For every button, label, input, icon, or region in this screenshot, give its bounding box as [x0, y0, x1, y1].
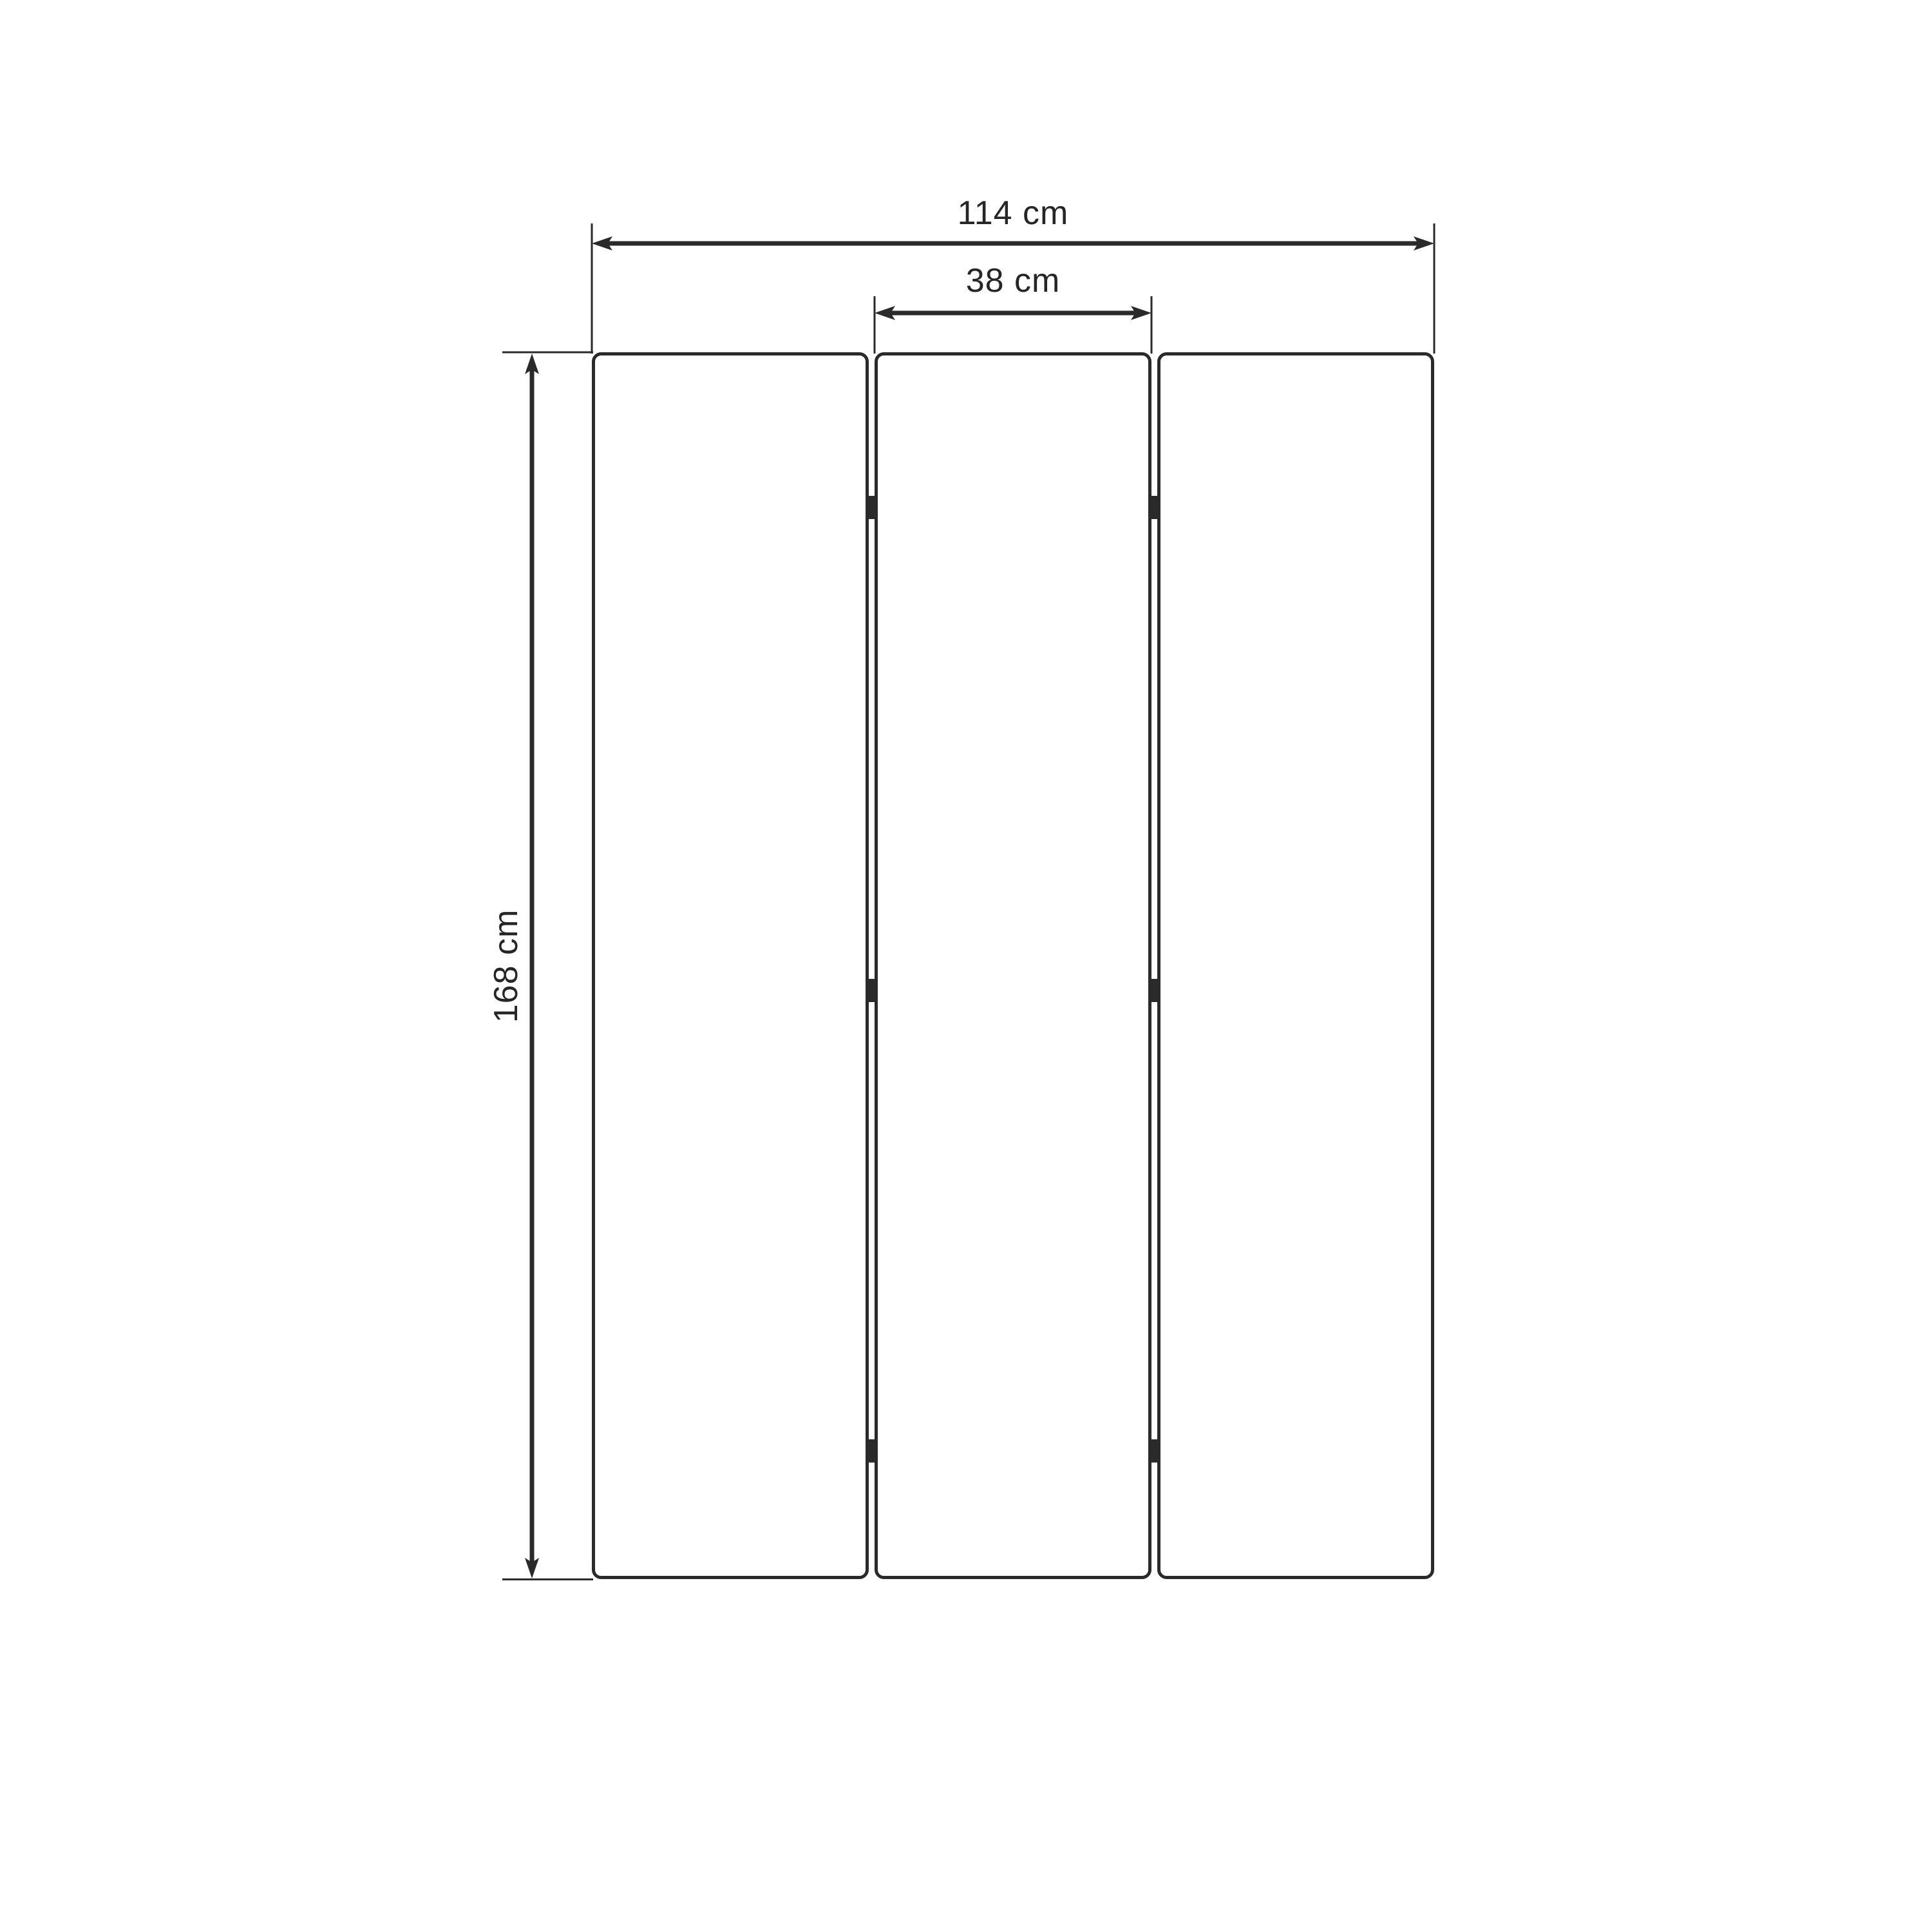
hinge-right-middle — [1150, 979, 1159, 1002]
hinge-left-bottom — [867, 1439, 876, 1463]
panel-left — [594, 354, 867, 1578]
hinge-right-bottom — [1150, 1439, 1159, 1463]
dimension-drawing-canvas: 114 cm 38 cm 168 cm — [0, 0, 1932, 1932]
panel-right — [1159, 354, 1433, 1578]
panel-width-dimension-label: 38 cm — [884, 262, 1142, 299]
hinge-left-middle — [867, 979, 876, 1002]
hinge-right-top — [1150, 496, 1159, 519]
total-width-dimension-label: 114 cm — [884, 194, 1142, 232]
panels-group — [594, 354, 1433, 1578]
panel-width-dimension — [875, 296, 1151, 354]
hinge-left-top — [867, 496, 876, 519]
panel-center — [876, 354, 1150, 1578]
height-dimension-label: 168 cm — [488, 837, 525, 1095]
